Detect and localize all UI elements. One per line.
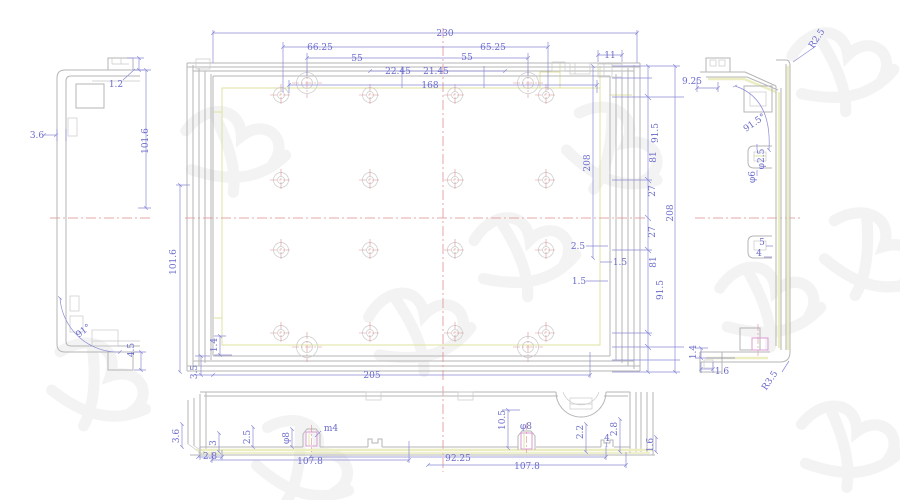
watermark-glyph [785, 15, 900, 123]
dim-label: 92.25 [445, 454, 471, 464]
dim-label: 3.6 [172, 429, 182, 444]
hole-centermark [270, 239, 292, 261]
watermark-glyph [819, 208, 900, 306]
hole-centermark [359, 169, 381, 191]
dim-label: 168 [421, 81, 438, 91]
dim-label: 21.45 [423, 67, 449, 77]
dim-label: 2.8 [203, 452, 218, 462]
watermark-glyph [714, 252, 827, 356]
dim-label: 66.25 [307, 43, 333, 53]
dim-label: 10.5 [498, 410, 508, 430]
dim-label: φ8 [520, 422, 532, 432]
left-side-view [44, 58, 152, 370]
dim-label: 3.6 [30, 131, 45, 141]
dim-label: 91.5 [656, 280, 666, 300]
dim-label: 1.5 [572, 277, 587, 287]
dim-label: R3.5 [760, 369, 780, 392]
dim-label: 81 [649, 151, 659, 162]
dim-label: 55 [351, 54, 363, 64]
dim-label: 91.5° [742, 112, 768, 134]
dim-label: 208 [666, 204, 676, 221]
dim-label: 101.6 [169, 249, 179, 275]
dim-label: 2.8 [610, 422, 620, 437]
dim-label: 101.6 [141, 128, 151, 154]
dim-label: 91° [74, 323, 93, 341]
hole-centermark [535, 322, 557, 344]
dim-label: 2.5 [571, 242, 586, 252]
hole-centermark [270, 322, 292, 344]
dim-label: 4 [756, 249, 762, 259]
dim-label: φ8 [282, 432, 292, 444]
dim-label: 81 [649, 256, 659, 267]
hole-centermark [444, 239, 466, 261]
hole-centermark [535, 84, 557, 106]
dim-label: 3 [209, 440, 219, 446]
dim-label: 91.5 [651, 123, 661, 143]
hole-centermark [444, 84, 466, 106]
hole-centermark [359, 239, 381, 261]
dim-label: 27 [648, 226, 658, 238]
dimension-labels-layer: 23066.2565.25555522.4521.4516811101.61.4… [30, 27, 828, 472]
dim-label: 3.5 [190, 365, 200, 380]
engineering-drawing: 23066.2565.25555522.4521.4516811101.61.4… [0, 0, 900, 500]
dim-label: φ2.5 [757, 148, 767, 169]
hole-centermark [270, 169, 292, 191]
dim-label: 1.6 [715, 367, 730, 377]
dim-label: 9.25 [682, 77, 702, 87]
dim-label: 208 [583, 154, 593, 171]
watermark-glyph [180, 99, 290, 200]
dim-label: 1.2 [109, 80, 123, 90]
dim-label: 11 [604, 51, 615, 61]
dim-label: 1.4 [210, 338, 220, 353]
dim-label: 1.4 [689, 345, 699, 360]
dim-label: 22.45 [385, 67, 411, 77]
watermark-glyph [797, 396, 900, 494]
dim-label: m4 [324, 424, 339, 434]
dim-label: 107.8 [297, 457, 323, 467]
dim-label: 55 [461, 53, 473, 63]
hole-centermark [359, 322, 381, 344]
dim-label: 205 [363, 371, 380, 381]
hole-centermark [535, 239, 557, 261]
dim-label: 230 [436, 29, 453, 39]
watermark-glyph [467, 200, 583, 308]
cad-drawing-canvas: 23066.2565.25555522.4521.4516811101.61.4… [0, 0, 900, 500]
hole-centermark [535, 169, 557, 191]
dim-label: 1.5 [613, 258, 628, 268]
dim-label: 107.8 [514, 462, 540, 472]
watermark-glyph [48, 339, 154, 434]
dim-label: 5 [759, 238, 765, 248]
dim-label: 2.5 [243, 430, 253, 445]
dim-label: 2.2 [576, 425, 586, 439]
watermark-glyph [362, 274, 480, 384]
dim-label: 27 [648, 185, 658, 197]
dim-label: 4.5 [127, 343, 137, 358]
dim-label: 1.6 [646, 438, 656, 453]
hole-centermark [444, 169, 466, 191]
dim-label: φ6 [748, 171, 758, 183]
dim-label: 65.25 [480, 43, 506, 53]
hole-centermark [359, 84, 381, 106]
